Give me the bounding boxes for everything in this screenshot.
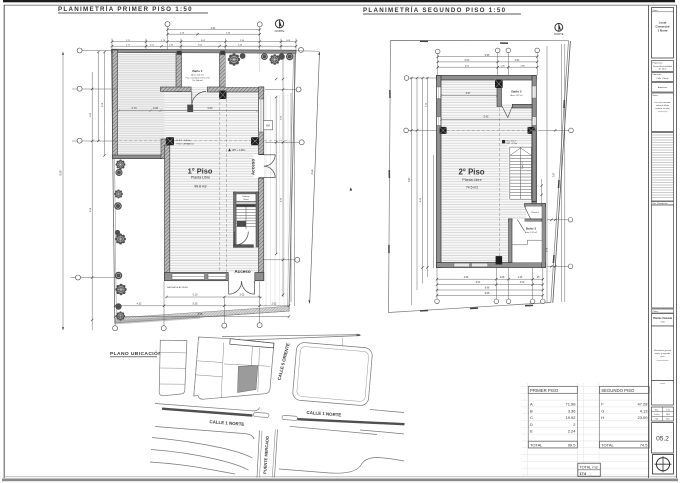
svg-text:PRIMER PISO: PRIMER PISO — [530, 388, 559, 393]
svg-text:8.98: 8.98 — [311, 169, 314, 175]
svg-text:TOTAL: TOTAL — [601, 442, 614, 447]
svg-text:E: E — [530, 429, 533, 434]
svg-text:2° Piso: 2° Piso — [458, 168, 484, 177]
svg-text:74.5: 74.5 — [640, 442, 649, 447]
svg-text:Arquitecto: Arquitecto — [658, 86, 668, 89]
svg-text:6.02: 6.02 — [476, 282, 481, 284]
svg-text:Ref: Ref — [266, 125, 270, 128]
svg-text:Plano:: Plano: — [653, 311, 659, 313]
svg-text:G: G — [601, 408, 604, 413]
svg-text:CALLE 1 NORTE: CALLE 1 NORTE — [209, 419, 244, 427]
svg-text:Baño 2: Baño 2 — [511, 90, 522, 94]
svg-text:PLANIMETRÍA PRIMER PISO 1:50: PLANIMETRÍA PRIMER PISO 1:50 — [58, 5, 193, 13]
svg-text:3.05: 3.05 — [240, 294, 245, 297]
svg-text:PLANO UBICACIÓN: PLANO UBICACIÓN — [110, 349, 162, 357]
svg-text:verificar en obra: verificar en obra — [655, 108, 670, 110]
svg-text:NORTE: NORTE — [554, 32, 564, 36]
svg-text:TOTAL: TOTAL — [530, 442, 543, 447]
svg-text:SEGUNDO PISO: SEGUNDO PISO — [601, 388, 635, 393]
svg-text:9.96: 9.96 — [485, 54, 490, 57]
svg-text:TOTAL m2: TOTAL m2 — [579, 464, 598, 469]
svg-text:99.8 m2: 99.8 m2 — [194, 185, 206, 189]
svg-text:F: F — [601, 402, 604, 407]
svg-text:74.5 m2: 74.5 m2 — [466, 185, 478, 189]
svg-text:4.98: 4.98 — [90, 207, 92, 212]
svg-text:Bodega: Bodega — [243, 196, 251, 198]
svg-text:1.92: 1.92 — [281, 115, 283, 120]
svg-text:Baño 3: Baño 3 — [526, 226, 537, 230]
svg-text:Sube 17: Sube 17 — [522, 161, 524, 169]
svg-text:Propietario:: Propietario: — [653, 61, 664, 64]
svg-text:71.98: 71.98 — [565, 402, 576, 407]
svg-text:6.02: 6.02 — [465, 59, 470, 62]
svg-text:PUENTE MERCADO: PUENTE MERCADO — [262, 436, 270, 474]
svg-text:5.35: 5.35 — [193, 303, 198, 306]
svg-text:A: A — [530, 402, 533, 407]
svg-text:Notas:: Notas: — [653, 94, 659, 97]
svg-text:4.96: 4.96 — [464, 277, 469, 279]
svg-text:Un: Natural: Un: Natural — [192, 79, 203, 82]
svg-text:1° Piso: 1° Piso — [188, 167, 213, 176]
svg-text:2.24: 2.24 — [568, 429, 577, 434]
svg-text:NPT + 0.05m: NPT + 0.05m — [232, 150, 246, 152]
svg-text:Plantas Vivienda: Plantas Vivienda — [653, 317, 673, 320]
svg-text:4.33: 4.33 — [420, 197, 422, 202]
svg-text:Acceso: Acceso — [251, 159, 256, 176]
svg-text:2.36: 2.36 — [518, 277, 523, 279]
svg-text:B: B — [530, 408, 533, 413]
svg-text:8.98: 8.98 — [485, 288, 490, 290]
svg-text:05.2: 05.2 — [656, 436, 669, 443]
svg-text:5.10: 5.10 — [193, 294, 198, 297]
svg-text:PLANIMETRÍA SEGUNDO PISO 1:50: PLANIMETRÍA SEGUNDO PISO 1:50 — [363, 6, 506, 14]
svg-text:3.36: 3.36 — [568, 408, 577, 413]
svg-text:2: 2 — [573, 422, 576, 427]
svg-text:47.28: 47.28 — [637, 402, 648, 407]
svg-text:4.62: 4.62 — [211, 27, 216, 30]
svg-text:4.33: 4.33 — [281, 197, 283, 202]
svg-text:Calle 1 Norte: Calle 1 Norte — [656, 77, 669, 80]
svg-text:Área: 2.41 m2: Área: 2.41 m2 — [525, 231, 537, 234]
svg-text:2.70: 2.70 — [131, 106, 137, 110]
svg-text:3.97: 3.97 — [466, 92, 471, 95]
svg-text:4.13: 4.13 — [640, 408, 649, 413]
svg-text:5.42: 5.42 — [484, 116, 489, 119]
svg-text:Ilustre Municipalidad: Ilustre Municipalidad — [653, 65, 673, 68]
svg-text:C: C — [530, 415, 533, 420]
svg-text:3.08: 3.08 — [102, 102, 104, 107]
svg-text:2021: 2021 — [666, 414, 670, 416]
svg-text:Piso: Cerámico 0.33 x 0.33: Piso: Cerámico 0.33 x 0.33 — [185, 77, 210, 79]
svg-text:3.94: 3.94 — [515, 59, 520, 62]
svg-text:NPT +2.75m: NPT +2.75m — [507, 143, 518, 145]
svg-text:4.02: 4.02 — [520, 282, 525, 284]
svg-text:CALLE 1 NORTE: CALLE 1 NORTE — [306, 410, 341, 418]
svg-text:Esc:: Esc: — [655, 409, 659, 411]
svg-text:Baño 1: Baño 1 — [192, 69, 203, 73]
svg-text:99.5: 99.5 — [568, 442, 577, 447]
svg-text:1.06: 1.06 — [500, 277, 505, 279]
svg-text:sobre el dibujo: sobre el dibujo — [656, 105, 670, 107]
svg-text:19.92: 19.92 — [565, 415, 576, 420]
svg-text:Planta Libre: Planta Libre — [191, 176, 210, 180]
svg-text:D: D — [530, 422, 533, 427]
svg-text:Las cotas mandan: Las cotas mandan — [654, 101, 670, 104]
svg-text:2.80: 2.80 — [90, 112, 92, 117]
svg-text:primer y segundo: primer y segundo — [655, 353, 671, 355]
svg-text:7.57: 7.57 — [408, 177, 411, 182]
svg-text:Ubicación:: Ubicación: — [653, 74, 663, 76]
svg-text:Closet 1: Closet 1 — [531, 211, 540, 214]
svg-text:Área: 2.97 m2: Área: 2.97 m2 — [511, 94, 523, 97]
svg-text:9.96: 9.96 — [485, 293, 490, 295]
svg-text:8.98: 8.98 — [198, 313, 203, 316]
svg-text:5.02: 5.02 — [207, 106, 213, 110]
svg-text:CALLE 5 ORIENTE: CALLE 5 ORIENTE — [276, 342, 290, 380]
svg-text:Fecha: Fecha — [654, 414, 660, 416]
svg-text:Planimetría general: Planimetría general — [654, 349, 672, 352]
svg-text:Closet: Closet — [243, 198, 249, 201]
svg-text:Área: 3.01 m2: Área: 3.01 m2 — [191, 74, 204, 77]
svg-text:174: 174 — [579, 471, 586, 476]
svg-text:H: H — [601, 415, 604, 420]
svg-text:de Talca: de Talca — [659, 69, 668, 71]
svg-text:SALIDA DE ACCESO: SALIDA DE ACCESO — [167, 286, 188, 289]
svg-text:Obra:: Obra: — [653, 9, 659, 12]
svg-text:23.00: 23.00 — [637, 415, 648, 420]
svg-text:Planta Libre: Planta Libre — [462, 178, 481, 182]
svg-text:7.57: 7.57 — [553, 172, 556, 177]
svg-text:0.30: 0.30 — [153, 106, 159, 110]
svg-text:N.P.T. +0.00m: N.P.T. +0.00m — [177, 140, 191, 142]
svg-text:Dib.: Dib. — [655, 419, 659, 421]
svg-text:8.58: 8.58 — [60, 170, 63, 175]
svg-text:.45: .45 — [536, 277, 540, 279]
svg-text:2.62: 2.62 — [272, 303, 277, 306]
svg-text:2.12: 2.12 — [425, 102, 427, 107]
svg-text:PISO CERAMICO: PISO CERAMICO — [177, 143, 195, 146]
svg-text:1:50: 1:50 — [666, 409, 670, 411]
svg-text:4.32: 4.32 — [137, 303, 142, 306]
svg-text:Rev.: Rev. — [666, 419, 670, 421]
svg-text:NORTE: NORTE — [275, 29, 285, 33]
svg-text:1 Norte: 1 Norte — [658, 29, 668, 33]
svg-text:Acceso: Acceso — [234, 269, 251, 274]
